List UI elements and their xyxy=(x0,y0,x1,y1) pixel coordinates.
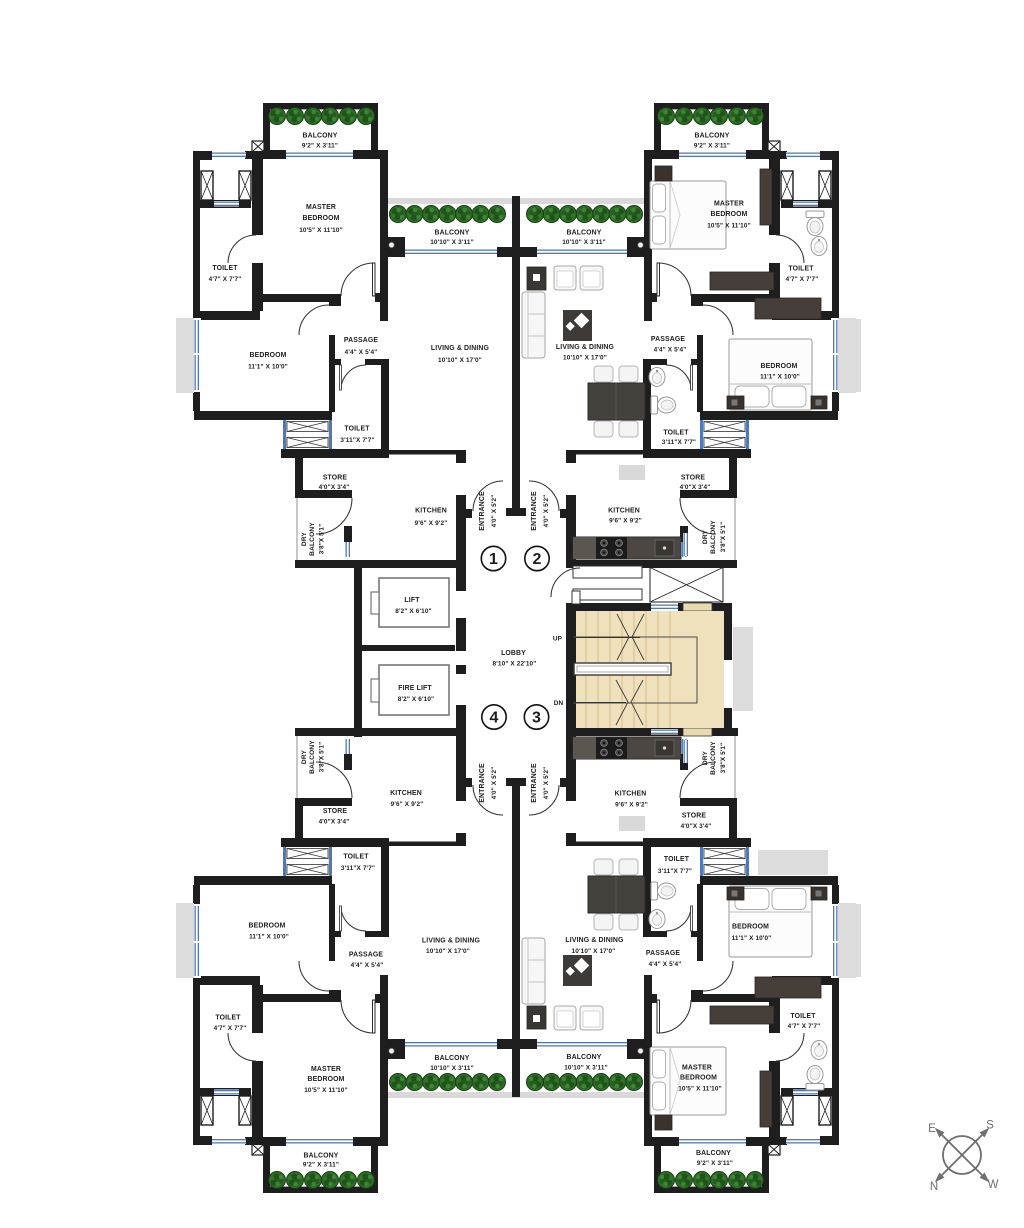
svg-text:STORE: STORE xyxy=(682,813,707,820)
svg-text:S: S xyxy=(986,1120,994,1132)
svg-text:TOILET: TOILET xyxy=(215,1015,241,1022)
svg-text:3'11"X 7'7": 3'11"X 7'7" xyxy=(341,865,375,872)
svg-text:BEDROOM: BEDROOM xyxy=(307,1076,344,1083)
svg-text:4'0" X 5'2": 4'0" X 5'2" xyxy=(543,767,550,800)
svg-text:9'2" X 3'11": 9'2" X 3'11" xyxy=(697,1160,733,1167)
svg-text:BEDROOM: BEDROOM xyxy=(680,1075,717,1082)
svg-text:E: E xyxy=(928,1123,936,1135)
svg-text:11'1" X 10'0": 11'1" X 10'0" xyxy=(732,935,772,942)
svg-text:9'6" X 9'2": 9'6" X 9'2" xyxy=(609,518,642,525)
svg-text:DN: DN xyxy=(554,700,564,707)
svg-text:PASSAGE: PASSAGE xyxy=(349,952,383,959)
svg-text:4'4" X 5'4": 4'4" X 5'4" xyxy=(649,961,682,968)
svg-text:3'8"X 5'1": 3'8"X 5'1" xyxy=(720,522,727,552)
svg-text:3: 3 xyxy=(532,710,541,727)
svg-text:BALCONY: BALCONY xyxy=(303,1153,338,1160)
svg-text:4'7" X 7'7": 4'7" X 7'7" xyxy=(788,1023,821,1030)
svg-text:DRY: DRY xyxy=(301,531,308,546)
svg-text:9'6" X 9'2": 9'6" X 9'2" xyxy=(615,802,648,809)
svg-text:BEDROOM: BEDROOM xyxy=(710,211,747,218)
svg-text:10'10" X 3'11": 10'10" X 3'11" xyxy=(562,239,606,246)
svg-text:ENTRANCE: ENTRANCE xyxy=(479,763,486,803)
svg-text:11'1" X 10'0": 11'1" X 10'0" xyxy=(248,364,288,371)
svg-text:4'0"X 3'4": 4'0"X 3'4" xyxy=(680,484,711,491)
svg-text:BALCONY: BALCONY xyxy=(434,230,469,237)
svg-text:10'10" X 3'11": 10'10" X 3'11" xyxy=(564,1065,608,1072)
svg-text:PASSAGE: PASSAGE xyxy=(646,950,680,957)
svg-text:TOILET: TOILET xyxy=(343,854,369,861)
svg-text:LOBBY: LOBBY xyxy=(501,650,526,657)
svg-text:TOILET: TOILET xyxy=(663,430,689,437)
svg-text:4'7" X 7'7": 4'7" X 7'7" xyxy=(214,1025,247,1032)
svg-text:UP: UP xyxy=(553,636,563,643)
svg-text:LIFT: LIFT xyxy=(404,597,420,604)
svg-text:KITCHEN: KITCHEN xyxy=(615,791,647,798)
svg-text:BEDROOM: BEDROOM xyxy=(249,352,286,359)
svg-text:10'10" X 17'0": 10'10" X 17'0" xyxy=(563,355,607,362)
svg-text:LIVING & DINING: LIVING & DINING xyxy=(565,937,623,944)
svg-text:4'0" X 5'2": 4'0" X 5'2" xyxy=(543,495,550,528)
svg-text:3'11"X 7'7": 3'11"X 7'7" xyxy=(340,437,374,444)
svg-text:4'7" X 7'7": 4'7" X 7'7" xyxy=(209,276,242,283)
svg-text:ENTRANCE: ENTRANCE xyxy=(531,763,538,803)
svg-text:TOILET: TOILET xyxy=(344,426,370,433)
svg-text:4'7" X 7'7": 4'7" X 7'7" xyxy=(786,276,819,283)
svg-text:W: W xyxy=(988,1179,999,1191)
svg-text:9'2" X 3'11": 9'2" X 3'11" xyxy=(302,143,338,150)
svg-text:BALCONY: BALCONY xyxy=(309,522,316,556)
svg-text:4'0"X 3'4": 4'0"X 3'4" xyxy=(319,484,350,491)
svg-text:BALCONY: BALCONY xyxy=(309,740,316,774)
svg-text:TOILET: TOILET xyxy=(788,266,814,273)
svg-text:TOILET: TOILET xyxy=(790,1013,816,1020)
svg-text:9'2" X 3'11": 9'2" X 3'11" xyxy=(694,143,730,150)
svg-text:10'10" X 17'0": 10'10" X 17'0" xyxy=(572,948,616,955)
svg-text:DRY: DRY xyxy=(702,529,709,544)
svg-text:BEDROOM: BEDROOM xyxy=(760,363,797,370)
svg-text:10'10" X 3'11": 10'10" X 3'11" xyxy=(430,1065,474,1072)
svg-text:TOILET: TOILET xyxy=(212,265,238,272)
svg-text:4'0" X 5'2": 4'0" X 5'2" xyxy=(491,495,498,528)
svg-text:10'5" X 11'10": 10'5" X 11'10" xyxy=(707,223,751,230)
svg-text:10'5" X 11'10": 10'5" X 11'10" xyxy=(299,227,343,234)
svg-text:3'8"X 5'1": 3'8"X 5'1" xyxy=(319,524,326,554)
svg-text:TOILET: TOILET xyxy=(664,856,690,863)
svg-text:8'10" X 22'10": 8'10" X 22'10" xyxy=(493,661,537,668)
svg-text:10'10" X 3'11": 10'10" X 3'11" xyxy=(430,239,474,246)
svg-text:9'6" X 9'2": 9'6" X 9'2" xyxy=(415,520,448,527)
svg-text:KITCHEN: KITCHEN xyxy=(608,508,640,515)
svg-text:10'5" X 11'10": 10'5" X 11'10" xyxy=(304,1087,348,1094)
svg-text:STORE: STORE xyxy=(323,808,348,815)
svg-text:10'5" X 11'10": 10'5" X 11'10" xyxy=(678,1086,722,1093)
svg-text:KITCHEN: KITCHEN xyxy=(415,508,447,515)
svg-text:4'0" X 5'2": 4'0" X 5'2" xyxy=(491,767,498,800)
svg-text:2: 2 xyxy=(532,551,541,568)
svg-text:LIVING & DINING: LIVING & DINING xyxy=(431,345,489,352)
svg-text:MASTER: MASTER xyxy=(311,1066,341,1073)
svg-text:BALCONY: BALCONY xyxy=(566,230,601,237)
svg-text:4'4" X 5'4": 4'4" X 5'4" xyxy=(345,349,378,356)
svg-text:9'6" X 9'2": 9'6" X 9'2" xyxy=(391,801,424,808)
svg-text:3'8"X 5'1": 3'8"X 5'1" xyxy=(319,742,326,772)
svg-text:PASSAGE: PASSAGE xyxy=(651,336,685,343)
svg-text:STORE: STORE xyxy=(323,475,348,482)
svg-text:3'8"X 5'1": 3'8"X 5'1" xyxy=(720,743,727,773)
svg-text:LIVING & DINING: LIVING & DINING xyxy=(556,344,614,351)
svg-text:PASSAGE: PASSAGE xyxy=(344,337,378,344)
svg-text:3'11"X 7'7": 3'11"X 7'7" xyxy=(658,868,692,875)
svg-text:BEDROOM: BEDROOM xyxy=(732,924,769,931)
svg-text:4: 4 xyxy=(489,710,498,727)
svg-text:9'2" X 3'11": 9'2" X 3'11" xyxy=(303,1162,339,1169)
svg-text:DRY: DRY xyxy=(702,750,709,765)
svg-text:FIRE LIFT: FIRE LIFT xyxy=(398,685,432,692)
svg-text:MASTER: MASTER xyxy=(682,1065,712,1072)
svg-text:MASTER: MASTER xyxy=(714,201,744,208)
svg-text:4'0"X 3'4": 4'0"X 3'4" xyxy=(681,823,712,830)
svg-text:MASTER: MASTER xyxy=(306,204,336,211)
svg-text:8'2" X 6'10": 8'2" X 6'10" xyxy=(398,696,434,703)
svg-text:4'4" X 5'4": 4'4" X 5'4" xyxy=(351,962,384,969)
svg-text:STORE: STORE xyxy=(681,475,706,482)
svg-text:KITCHEN: KITCHEN xyxy=(390,790,422,797)
svg-text:4'0"X 3'4": 4'0"X 3'4" xyxy=(319,819,350,826)
svg-text:N: N xyxy=(930,1181,938,1193)
svg-text:BALCONY: BALCONY xyxy=(434,1055,469,1062)
svg-text:ENTRANCE: ENTRANCE xyxy=(531,491,538,531)
svg-text:BALCONY: BALCONY xyxy=(302,133,337,140)
svg-text:BEDROOM: BEDROOM xyxy=(302,215,339,222)
svg-text:BALCONY: BALCONY xyxy=(566,1054,601,1061)
svg-text:1: 1 xyxy=(489,551,498,568)
svg-text:11'1" X 10'0": 11'1" X 10'0" xyxy=(760,374,800,381)
svg-text:ENTRANCE: ENTRANCE xyxy=(479,491,486,531)
svg-text:3'11"X 7'7": 3'11"X 7'7" xyxy=(662,439,696,446)
svg-text:BALCONY: BALCONY xyxy=(710,741,717,775)
svg-text:BALCONY: BALCONY xyxy=(710,520,717,554)
svg-text:11'1" X 10'0": 11'1" X 10'0" xyxy=(249,934,289,941)
svg-text:LIVING & DINING: LIVING & DINING xyxy=(422,938,480,945)
svg-text:8'2" X 6'10": 8'2" X 6'10" xyxy=(395,608,431,615)
svg-text:BALCONY: BALCONY xyxy=(694,133,729,140)
svg-text:4'4" X 5'4": 4'4" X 5'4" xyxy=(654,347,687,354)
svg-text:BALCONY: BALCONY xyxy=(696,1150,731,1157)
svg-text:BEDROOM: BEDROOM xyxy=(248,923,285,930)
svg-text:10'10" X 17'0": 10'10" X 17'0" xyxy=(426,948,470,955)
svg-text:DRY: DRY xyxy=(301,749,308,764)
svg-text:10'10" X 17'0": 10'10" X 17'0" xyxy=(438,357,482,364)
